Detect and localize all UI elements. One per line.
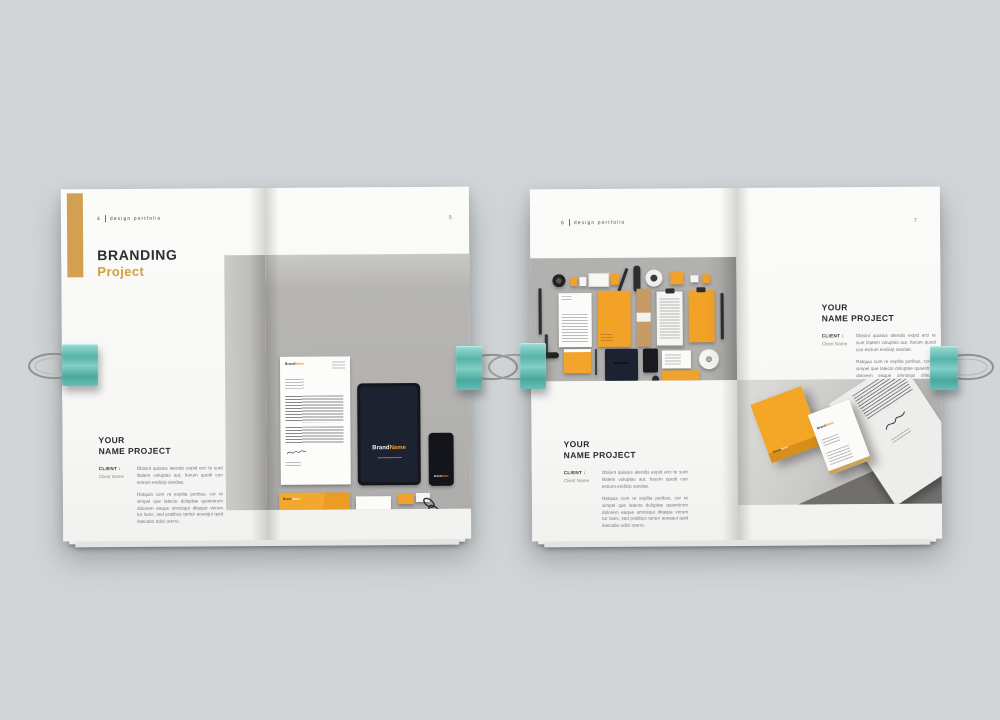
header-divider <box>569 219 570 226</box>
pencil-box-label <box>637 313 651 322</box>
left-spread: 4 design portfolio BRANDING Project YOUR… <box>61 187 471 542</box>
client-label: CLIENT : <box>822 333 856 338</box>
letterhead-item <box>559 293 592 347</box>
project-heading-line2: NAME PROJECT <box>564 449 694 461</box>
tape-roll <box>645 270 662 287</box>
paperclip-icon <box>422 495 442 510</box>
clip-handle-wire <box>954 350 996 384</box>
card-stack <box>662 350 691 368</box>
client-label: CLIENT : <box>564 470 602 475</box>
spine-shade <box>706 257 737 380</box>
brand-logo: BrandName <box>605 362 638 365</box>
clipboard-clip <box>665 288 674 293</box>
project-paragraph: Ratquia cum re explita poribus, cor re s… <box>602 495 688 530</box>
mini-card <box>398 494 414 504</box>
project-paragraphs: Obisint quiatus atendis expid erci te su… <box>137 465 223 531</box>
notepad-binding <box>564 349 591 352</box>
pencil <box>721 293 724 339</box>
client-name: Client Name <box>822 341 856 346</box>
client-column: CLIENT : Client Name <box>564 470 602 535</box>
project-paragraph: Obisint quiatus atendis expid erci te su… <box>137 465 223 486</box>
white-chip <box>579 277 586 286</box>
project-heading-line1: YOUR <box>98 434 228 446</box>
brand-logo: BrandName <box>434 474 449 477</box>
page-number: 6 <box>561 220 565 226</box>
orange-notebook <box>597 291 630 347</box>
mockup-scene: 4 design portfolio BRANDING Project YOUR… <box>0 0 1000 720</box>
binder-clip <box>456 346 482 390</box>
section-title: BRANDING Project <box>97 247 177 280</box>
orange-notepad <box>564 349 591 373</box>
binder-clip <box>62 344 98 386</box>
client-column: CLIENT : Client Name <box>99 466 137 531</box>
page-header: 4 design portfolio <box>97 215 161 222</box>
title-line-2: Project <box>97 264 177 280</box>
client-name: Client Name <box>99 474 137 479</box>
brand-logo: BrandName <box>772 445 788 454</box>
tablet-mockup: BrandName <box>357 383 421 485</box>
text-lines <box>660 298 680 338</box>
project-paragraphs: Obisint quiatus atendis expid erci te su… <box>602 469 688 535</box>
pencil <box>595 349 597 375</box>
project-paragraph: Obisint quiatus atendis expid erci te su… <box>856 333 936 354</box>
camera-lens <box>552 274 565 287</box>
orange-chip <box>610 274 619 285</box>
clipboard <box>655 290 683 346</box>
project-heading-line2: NAME PROJECT <box>99 445 229 457</box>
clipboard-clip <box>696 287 705 292</box>
brand-logo: BrandName <box>283 497 300 501</box>
tagline-line <box>377 457 401 458</box>
stationery-photo: BrandName BrandName <box>265 254 471 510</box>
project-heading: YOUR NAME PROJECT <box>98 434 228 457</box>
page-number: 5 <box>449 215 452 221</box>
project-heading: YOUR NAME PROJECT <box>822 302 940 325</box>
text-lines <box>562 314 588 342</box>
project-paragraph: Obisint quiatus atendis expid erci te su… <box>602 469 688 490</box>
pencil <box>538 288 541 334</box>
orange-card <box>662 370 699 380</box>
binder-clip <box>520 343 546 389</box>
tablet-screen: BrandName <box>360 386 418 482</box>
header-label: design portfolio <box>110 215 162 221</box>
address-lines <box>332 361 345 369</box>
right-spread: 6 design portfolio <box>530 187 942 542</box>
page-5: 5 BrandName <box>265 187 471 540</box>
flatlay-photo: BrandName <box>530 257 737 381</box>
letter-body-lines <box>285 426 343 443</box>
card-stack <box>588 273 609 287</box>
gold-accent-bar <box>67 193 84 277</box>
binder-clip <box>930 346 958 390</box>
header-divider <box>105 215 106 222</box>
brand-book: BrandName <box>605 349 638 381</box>
project-heading-line2: NAME PROJECT <box>822 313 940 325</box>
page-number: 4 <box>97 216 101 222</box>
letterhead-mockup: BrandName <box>280 356 351 484</box>
signature-scribble <box>286 448 308 457</box>
phone-item <box>643 349 658 373</box>
photo-bleed-strip <box>224 255 267 510</box>
ink-cup <box>652 376 659 382</box>
orange-box <box>670 271 683 284</box>
letter-body-lines <box>285 395 343 422</box>
page-7: 7 YOUR NAME PROJECT CLIENT : Client Name… <box>736 187 942 540</box>
tape-roll-core <box>650 275 657 282</box>
phone-mockup: BrandName <box>428 433 453 486</box>
page-number: 7 <box>914 218 917 224</box>
brand-logo: BrandName <box>372 445 406 451</box>
text-lines <box>665 354 681 364</box>
client-label: CLIENT : <box>99 466 137 471</box>
project-paragraph: Ratquia cum re explita poribus, cor re s… <box>137 491 223 526</box>
recipient-lines <box>285 379 304 389</box>
white-chip <box>690 275 698 282</box>
pencil-box <box>636 289 650 347</box>
card-lines <box>821 434 841 448</box>
brand-logo: BrandName <box>816 420 834 430</box>
business-card-mockup: BrandName <box>356 496 391 510</box>
card-lines <box>826 445 853 466</box>
project-info-block: YOUR NAME PROJECT CLIENT : Client Name O… <box>98 434 229 531</box>
envelope-mockup: BrandName <box>279 492 350 510</box>
project-heading-line1: YOUR <box>564 438 694 450</box>
brand-logo: BrandName <box>285 362 304 370</box>
business-card-photo: BrandName BrandName <box>737 379 942 505</box>
project-heading-line1: YOUR <box>822 302 940 314</box>
project-info-block: YOUR NAME PROJECT CLIENT : Client Name O… <box>564 438 695 535</box>
sender-lines <box>286 462 301 468</box>
text-lines <box>562 296 572 300</box>
sender-lines <box>891 428 913 445</box>
page-header: 6 design portfolio <box>561 219 625 226</box>
page-6: 6 design portfolio <box>530 188 738 541</box>
orange-chip <box>570 277 577 286</box>
text-lines <box>601 334 613 342</box>
client-name: Client Name <box>564 478 602 483</box>
project-heading: YOUR NAME PROJECT <box>564 438 694 461</box>
header-label: design portfolio <box>574 219 626 225</box>
title-line-1: BRANDING <box>97 247 177 264</box>
